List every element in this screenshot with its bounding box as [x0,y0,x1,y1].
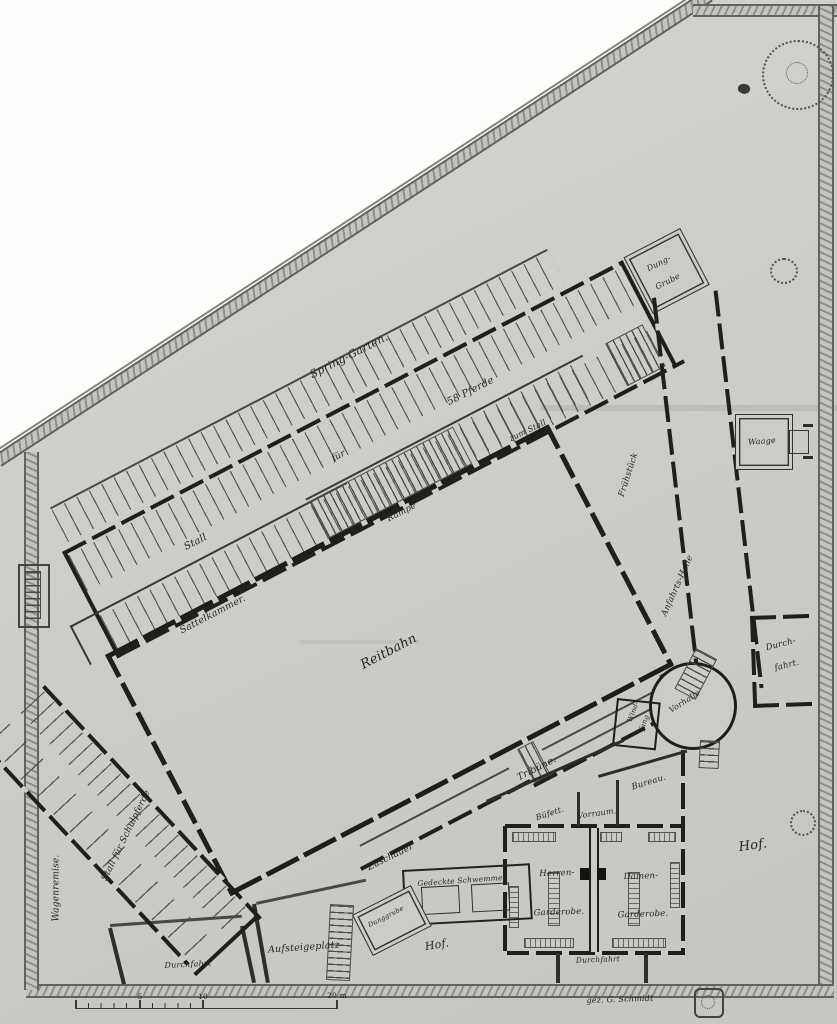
arena-right-wall [544,424,674,668]
floor-plan-page: Spring-Garten. Stall für 58 Pferde Dung-… [0,0,837,1024]
bench [612,938,666,948]
label-durchfahrt-bottom: Durchfahrt [576,955,620,964]
arena-bottom-wall [228,661,674,896]
label-hof-right: Hof. [738,837,768,854]
label-vorraum: Vorraum. [577,807,617,821]
scale-label-5: 5 [138,993,143,1001]
scale-tick-20 [336,1000,338,1009]
shrub [770,258,798,284]
shrub [737,82,752,96]
scale-tick-5 [139,1000,141,1009]
corridor-west-wall [652,298,702,696]
boundary-annex [18,564,50,628]
annex-stairs [25,571,41,619]
durchfahrt-north-wall [750,614,814,620]
stove [597,868,606,880]
schwemme-basin [421,885,460,915]
rotunda-stairs-lower [699,740,720,769]
site-boundary-right [818,6,834,998]
label-buefett: Büfett. [535,806,565,823]
label-signature: gez. G. Schmidt [586,995,653,1006]
durchfahrt-west-wall [750,616,757,708]
bench [648,832,676,842]
waage-wall-tie [803,456,813,459]
bench [548,872,560,926]
south-passage-wall [644,953,648,983]
label-herren-1: Herren- [539,869,575,879]
label-damen-1: Damen- [624,872,659,882]
garderobe-divider-wall [589,828,599,952]
scale-tick-0 [75,1000,77,1009]
right-wing-corridor [652,290,764,695]
gallery-rail [359,767,509,846]
schwemme-basin [471,882,510,912]
shrub [790,810,816,836]
waage-annex [789,430,809,454]
south-passage-wall [556,953,560,983]
corner-ornament [694,988,724,1018]
corner-ornament-spiral [701,995,715,1009]
bench [600,832,622,842]
scale-label-20m: 20 m [327,992,347,1000]
club-block-right-wall [681,750,685,955]
label-wagenremise: Wagenremise. [52,855,61,922]
scale-bar-line [75,1008,337,1009]
label-bureau: Bureau. [631,774,668,793]
bureau-top-wall [598,750,687,779]
bench [524,938,574,948]
label-herren-2: Garderobe. [533,908,584,919]
scale-tick-10 [202,1000,204,1009]
scale-bar: 5 10 20 m [75,994,355,1016]
vorraum-bureau-wall [616,780,619,826]
bench [512,832,556,842]
stove [580,868,589,880]
label-damen-2: Garderobe. [617,910,668,921]
bench [670,862,680,908]
aufsteigeplatz-top-wall [256,879,366,905]
waage-wall-tie [803,424,813,427]
label-hof-bottom: Hof. [424,937,450,953]
label-corridor-upper: Frühstück [618,452,641,498]
durchfahrt-south-wall [753,702,817,708]
durchfahrt-left-wall [108,928,126,985]
site-boundary-top [693,4,837,17]
tree-inner-ring [786,62,808,84]
scale-label-10: 10 [198,993,208,1001]
